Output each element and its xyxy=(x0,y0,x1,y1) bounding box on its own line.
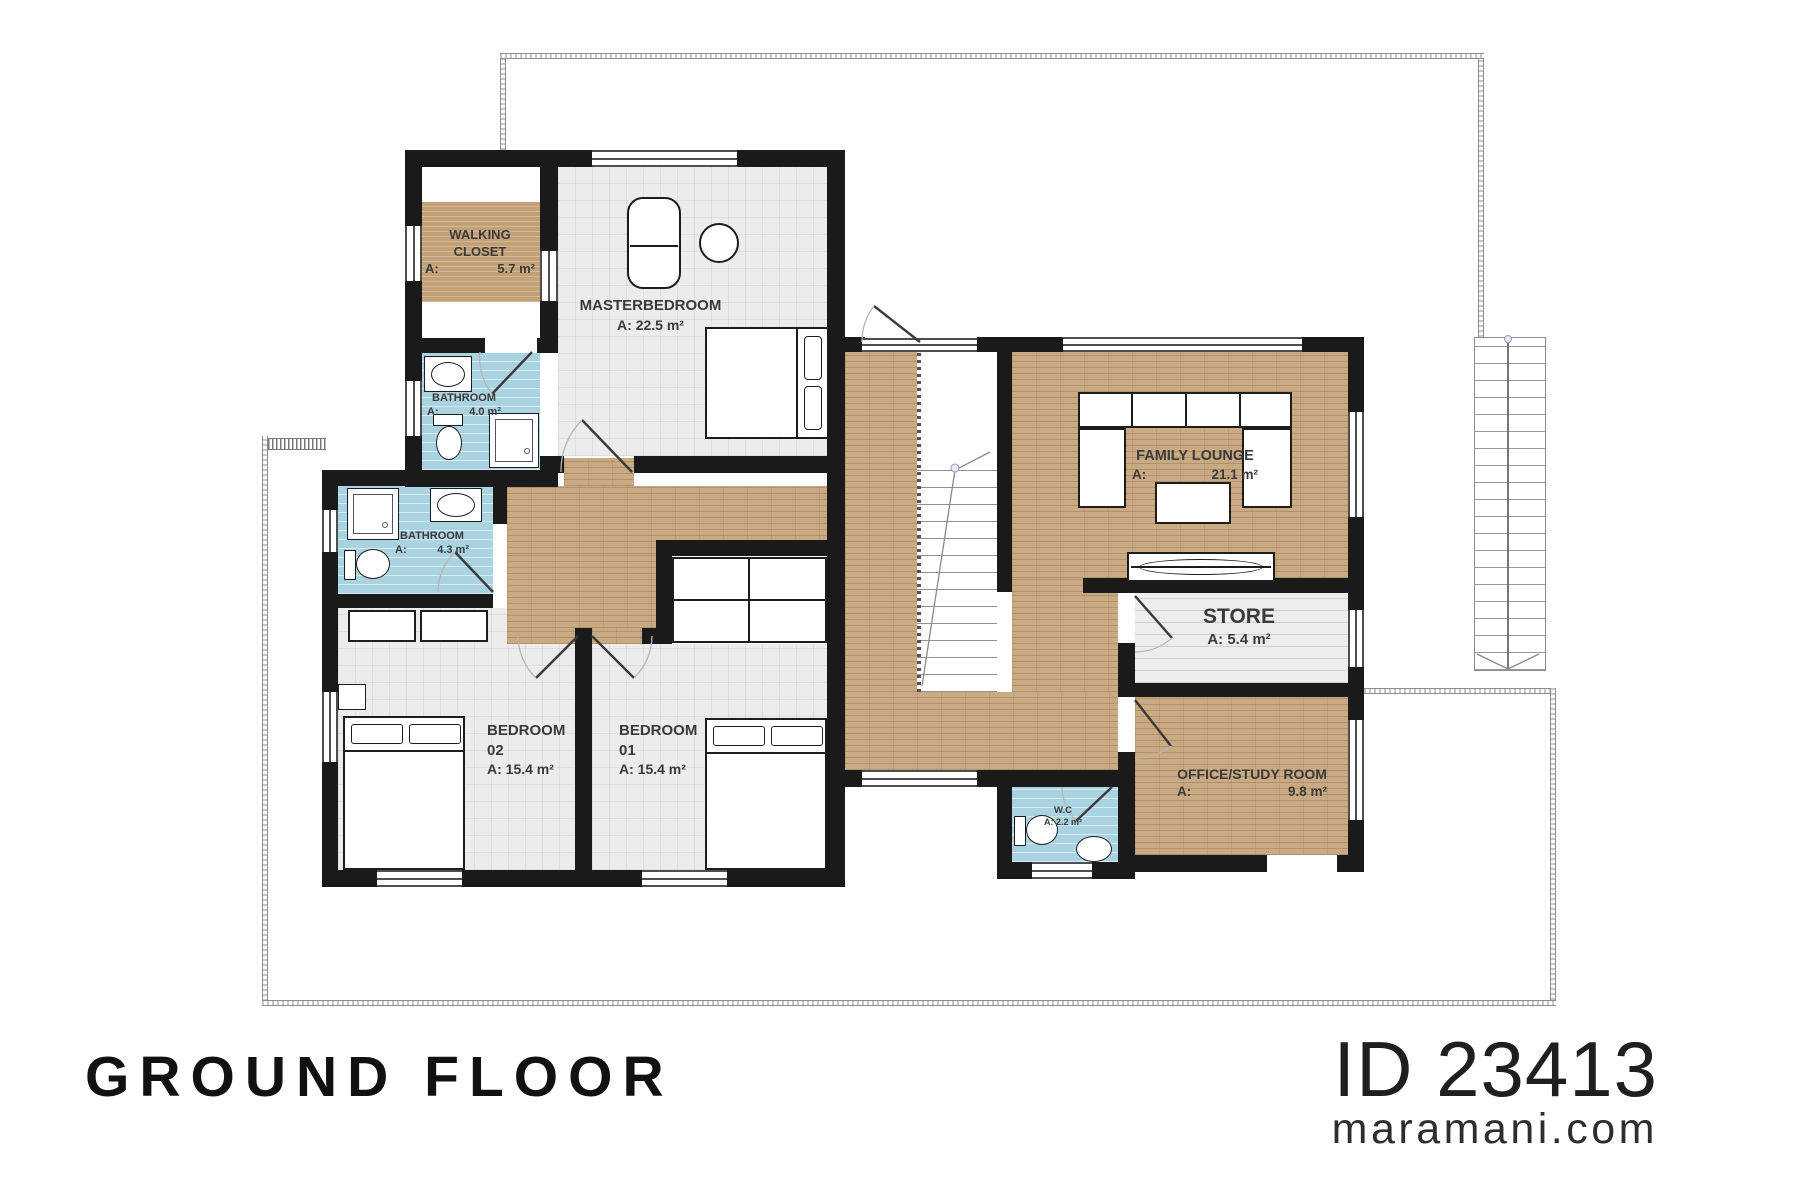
area-value: 2.2 m² xyxy=(1056,817,1082,827)
terrace-outline-left xyxy=(262,436,268,1006)
store-label: STORE A: 5.4 m² xyxy=(1160,603,1318,650)
wall-segment xyxy=(537,338,558,353)
wall-segment xyxy=(1302,337,1364,352)
floor-title: GROUND FLOOR xyxy=(85,1044,674,1110)
room-name: STORE xyxy=(1160,603,1318,630)
armchair-icon xyxy=(627,197,681,289)
wardrobe-icon xyxy=(420,610,488,642)
office-label: OFFICE/STUDY ROOM A: 9.8 m² xyxy=(1166,765,1338,801)
wall-segment xyxy=(322,870,377,887)
area-label: A: xyxy=(1207,631,1223,648)
wall-segment xyxy=(1092,862,1135,879)
external-staircase-stringer xyxy=(1507,337,1509,669)
area-label: A: xyxy=(617,317,632,333)
window-symbol xyxy=(1348,720,1364,820)
wall-segment xyxy=(322,608,338,692)
pillow-icon xyxy=(351,724,403,744)
corridor-floor xyxy=(845,352,917,692)
terrace-outline-bottom xyxy=(262,1000,1556,1006)
area-label: A: xyxy=(395,543,407,557)
area-value: 15.4 m² xyxy=(638,761,686,777)
sofa-icon xyxy=(1078,428,1126,508)
window-symbol xyxy=(1032,862,1092,879)
shower-drain xyxy=(524,448,530,454)
room-name: BEDROOM xyxy=(487,721,592,741)
room-name: OFFICE/STUDY ROOM xyxy=(1166,765,1338,783)
wall-segment xyxy=(462,870,642,887)
room-name: MASTERBEDROOM xyxy=(553,296,748,316)
deck-outline-top xyxy=(500,53,1484,59)
wall-segment xyxy=(322,470,408,486)
side-table-icon xyxy=(699,223,739,263)
sofa-divider xyxy=(1131,394,1133,426)
corridor-floor xyxy=(507,554,656,628)
area-value: 22.5 m² xyxy=(636,317,684,333)
window-symbol xyxy=(1348,412,1364,517)
wardrobe-icon xyxy=(348,610,416,642)
window-symbol xyxy=(405,226,422,281)
fence-hatch xyxy=(268,438,326,450)
wall-segment xyxy=(1348,517,1364,610)
bathroom-top-label: BATHROOM A: 4.0 m² xyxy=(414,391,514,420)
pillow-icon xyxy=(409,724,461,744)
nightstand-icon xyxy=(338,684,366,710)
floor-plan-page: { "footer": { "floor_label": "GROUND FLO… xyxy=(0,0,1800,1200)
sofa-divider xyxy=(1185,394,1187,426)
shower-tray xyxy=(495,419,533,462)
deck-door-threshold xyxy=(862,338,977,352)
wall-segment xyxy=(1337,855,1364,872)
wall-segment xyxy=(997,787,1012,862)
wall-segment xyxy=(322,762,338,886)
area-label: A: xyxy=(487,761,502,777)
wall-segment xyxy=(997,862,1032,879)
window-symbol xyxy=(1348,610,1364,667)
wardrobe-divider xyxy=(672,599,827,601)
bed-fold-line xyxy=(707,752,825,754)
wall-segment xyxy=(405,470,558,487)
area-value: 5.4 m² xyxy=(1227,631,1270,648)
wall-segment xyxy=(405,281,422,381)
window-symbol xyxy=(642,870,727,887)
window-symbol xyxy=(592,150,737,167)
room-name: BATHROOM xyxy=(384,529,480,543)
wall-segment xyxy=(977,770,1118,787)
sofa-divider xyxy=(1239,394,1241,426)
deck-outline-left xyxy=(500,59,506,150)
walking-closet-label: WALKING CLOSET A: 5.7 m² xyxy=(422,227,538,278)
area-value: 4.3 m² xyxy=(437,543,469,557)
area-label: A: xyxy=(1044,817,1054,827)
wall-segment xyxy=(1135,855,1267,872)
staircase-treads xyxy=(917,455,997,692)
area-value: 15.4 m² xyxy=(506,761,554,777)
armchair-divider xyxy=(630,245,678,247)
tv-icon xyxy=(1139,559,1263,575)
window-symbol xyxy=(862,770,977,787)
corridor-floor xyxy=(1012,592,1118,692)
window-symbol xyxy=(322,510,338,552)
staircase-railing xyxy=(917,352,921,692)
room-name: BATHROOM xyxy=(414,391,514,405)
wall-segment xyxy=(997,337,1063,352)
toilet-icon xyxy=(436,426,462,460)
room-name: WALKING CLOSET xyxy=(422,227,538,261)
window-symbol xyxy=(377,870,462,887)
wall-segment xyxy=(405,150,560,167)
pillow-icon xyxy=(804,386,822,430)
corridor-floor xyxy=(564,458,634,486)
window-symbol xyxy=(1063,337,1302,352)
corridor-floor xyxy=(845,692,1118,770)
wall-segment xyxy=(1348,352,1364,412)
family-lounge-label: FAMILY LOUNGE A: 21.1 m² xyxy=(1128,447,1262,483)
corridor-floor xyxy=(507,628,575,644)
wall-segment xyxy=(656,540,845,556)
bed-fold-line xyxy=(796,329,798,437)
wall-segment xyxy=(405,167,422,226)
wall-segment xyxy=(1118,683,1364,697)
terrace-outline-top-right xyxy=(1364,688,1550,694)
room-name: W.C xyxy=(1028,805,1098,817)
toilet-icon xyxy=(344,550,356,580)
coffee-table-icon xyxy=(1155,482,1231,524)
area-label: A: xyxy=(619,761,634,777)
area-label: A: xyxy=(1177,783,1191,801)
wall-segment xyxy=(540,456,564,473)
room-number: 01 xyxy=(619,741,724,761)
wall-segment xyxy=(558,150,592,167)
bathroom-mid-label: BATHROOM A: 4.3 m² xyxy=(384,529,480,558)
pillow-icon xyxy=(771,726,823,746)
door-opening xyxy=(540,251,558,301)
bedroom02-label: BEDROOM 02 A: 15.4 m² xyxy=(487,721,592,778)
room-number: 02 xyxy=(487,741,592,761)
bedroom01-label: BEDROOM 01 A: 15.4 m² xyxy=(619,721,724,778)
room-name: FAMILY LOUNGE xyxy=(1128,447,1262,466)
wall-segment xyxy=(405,338,485,353)
area-label: A: xyxy=(427,405,439,419)
pillow-icon xyxy=(804,336,822,380)
wall-segment xyxy=(540,167,558,251)
corridor-floor xyxy=(1012,578,1083,592)
area-label: A: xyxy=(1132,466,1146,484)
wall-segment xyxy=(997,352,1012,592)
toilet-icon xyxy=(1014,816,1026,846)
sink-icon xyxy=(437,493,475,517)
corridor-floor xyxy=(592,628,642,644)
wc-label: W.C A: 2.2 m² xyxy=(1028,805,1098,829)
area-label: A: xyxy=(425,261,439,278)
wall-segment xyxy=(977,337,997,352)
window-symbol xyxy=(322,692,338,762)
terrace-outline-right xyxy=(1550,688,1556,1000)
external-staircase-icon xyxy=(1474,337,1546,671)
area-value: 4.0 m² xyxy=(469,405,501,419)
shower-drain xyxy=(382,522,388,528)
wall-segment xyxy=(827,150,845,886)
website-url: maramani.com xyxy=(1100,1108,1658,1151)
wall-segment xyxy=(845,770,862,787)
plan-id: ID 23413 xyxy=(1100,1030,1658,1108)
wall-segment xyxy=(634,456,845,473)
wall-segment xyxy=(727,870,845,887)
bed-fold-line xyxy=(345,750,463,752)
wall-segment xyxy=(322,486,338,510)
wall-segment xyxy=(322,594,493,608)
wall-segment xyxy=(1118,752,1135,872)
area-value: 9.8 m² xyxy=(1288,783,1327,801)
area-value: 5.7 m² xyxy=(497,261,535,278)
sink-icon xyxy=(431,362,465,387)
wall-segment xyxy=(493,486,507,524)
masterbedroom-label: MASTERBEDROOM A: 22.5 m² xyxy=(553,296,748,334)
deck-outline-right xyxy=(1478,59,1484,337)
area-value: 21.1 m² xyxy=(1211,466,1258,484)
sink-icon xyxy=(1076,836,1112,862)
room-name: BEDROOM xyxy=(619,721,724,741)
shower-tray xyxy=(353,494,393,534)
